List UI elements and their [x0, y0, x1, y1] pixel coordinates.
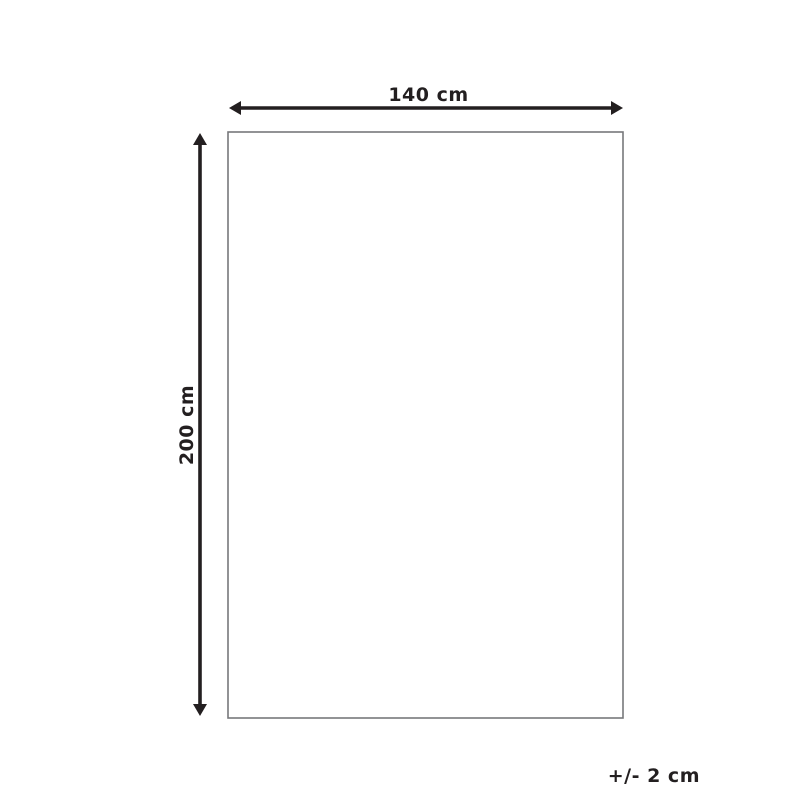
arrow-up-head-icon: [193, 133, 207, 145]
dimension-diagram: 140 cm 200 cm +/- 2 cm: [0, 0, 800, 800]
height-dimension-label: 200 cm: [175, 375, 199, 475]
width-dimension-label: 140 cm: [231, 83, 626, 107]
diagram-graphics: [0, 0, 800, 800]
product-outline-rect: [228, 132, 623, 718]
tolerance-label: +/- 2 cm: [560, 764, 700, 788]
arrow-down-head-icon: [193, 704, 207, 716]
